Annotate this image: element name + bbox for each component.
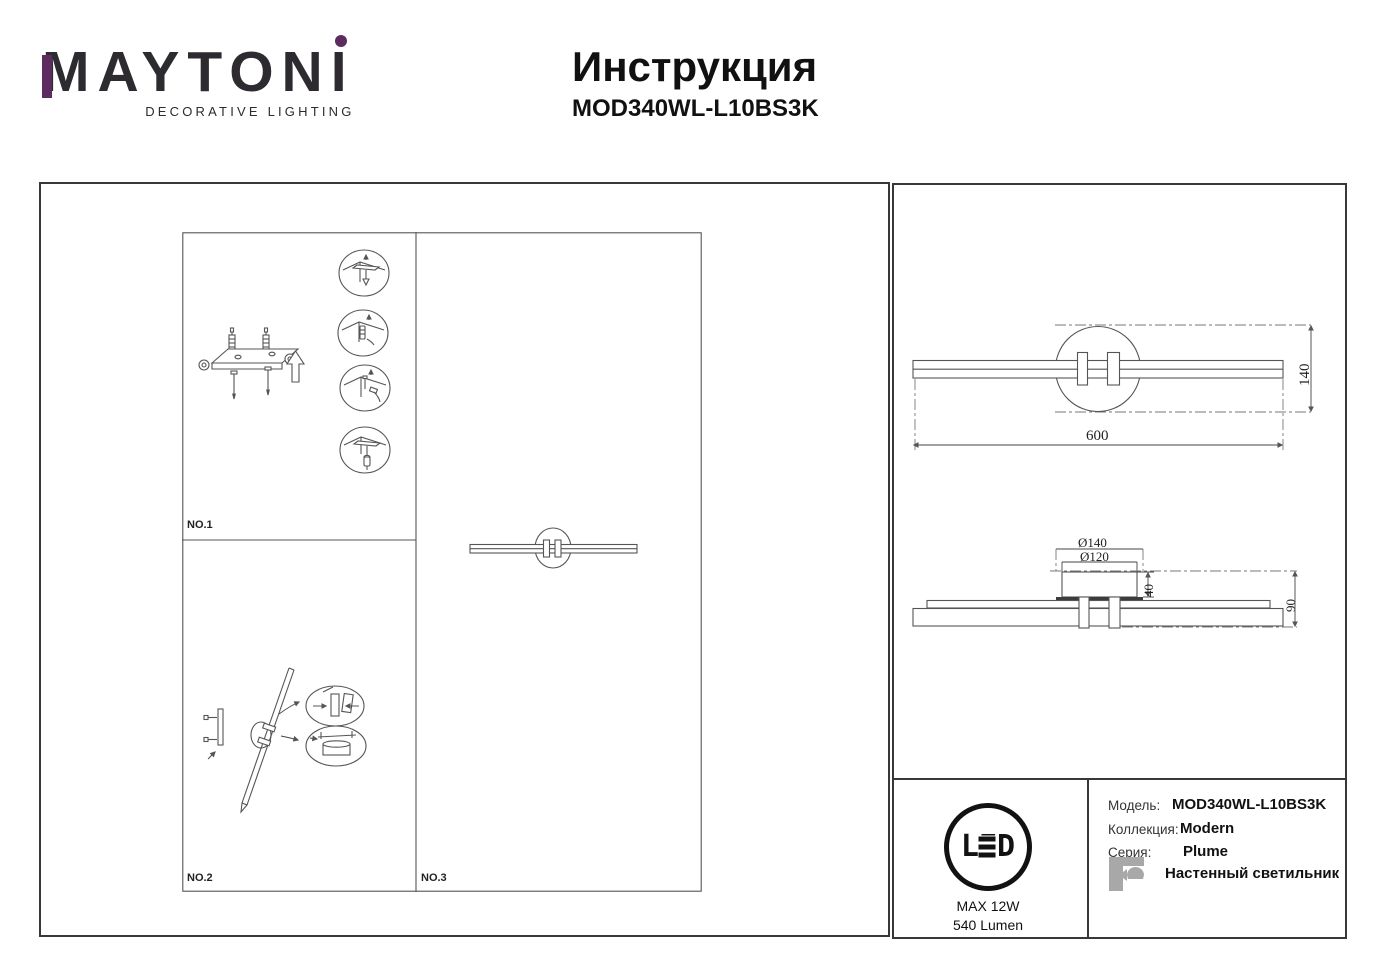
rod-assembly-drawing — [204, 668, 299, 812]
logo-m-accent — [42, 55, 52, 98]
spec-divider — [1087, 778, 1089, 939]
rod-detail-ellipse-2 — [306, 726, 366, 766]
model-value: MOD340WL-L10BS3K — [1172, 796, 1326, 813]
title-block: Инструкция MOD340WL-L10BS3K — [572, 46, 819, 123]
max-power-label: MAX 12W — [944, 898, 1032, 914]
rod-detail-ellipse-1 — [306, 686, 364, 726]
brand-tagline: DECORATIVE LIGHTING — [42, 104, 355, 119]
technical-drawing — [892, 183, 1347, 778]
installation-diagram — [182, 232, 702, 892]
collection-label: Коллекция: — [1108, 822, 1179, 837]
page-model-code: MOD340WL-L10BS3K — [572, 95, 819, 123]
page-title: Инструкция — [572, 46, 819, 88]
led-logo: LED — [961, 832, 1015, 862]
wall-lamp-icon — [1109, 852, 1155, 896]
step-label-no3: NO.3 — [421, 872, 447, 884]
step-detail-ellipse-2 — [338, 310, 388, 356]
dim-width-600: 600 — [1086, 428, 1109, 445]
step-detail-ellipse-1 — [339, 250, 389, 296]
step-label-no2: NO.2 — [187, 872, 213, 884]
step-detail-ellipse-3 — [340, 365, 390, 411]
step-label-no1: NO.1 — [187, 519, 213, 531]
led-e-bars-icon — [979, 836, 998, 859]
fixture-type-value: Настенный светильник — [1165, 865, 1339, 882]
logo-i-dot-icon — [335, 35, 347, 47]
dim-height-140: 140 — [1297, 364, 1314, 387]
series-value: Plume — [1183, 843, 1228, 860]
front-view-drawing — [913, 325, 1311, 451]
dim-depth-90: 90 — [1283, 599, 1299, 612]
collection-value: Modern — [1180, 820, 1234, 837]
model-label: Модель: — [1108, 798, 1160, 813]
lumen-label: 540 Lumen — [944, 917, 1032, 933]
instruction-page: MAYTONI DECORATIVE LIGHTING Инструкция M… — [0, 0, 1379, 973]
brand-logo: MAYTONI DECORATIVE LIGHTING — [42, 44, 355, 119]
brand-name-text: MAYTONI — [42, 40, 355, 104]
led-badge: LED — [944, 803, 1032, 891]
dim-base-40: 40 — [1141, 584, 1157, 597]
finished-lamp-drawing — [470, 528, 637, 568]
step-detail-ellipse-4 — [340, 427, 390, 473]
dim-diameter-120: Ø120 — [1080, 549, 1109, 565]
brand-name: MAYTONI — [42, 44, 355, 101]
bracket-mounting-drawing — [199, 328, 304, 399]
